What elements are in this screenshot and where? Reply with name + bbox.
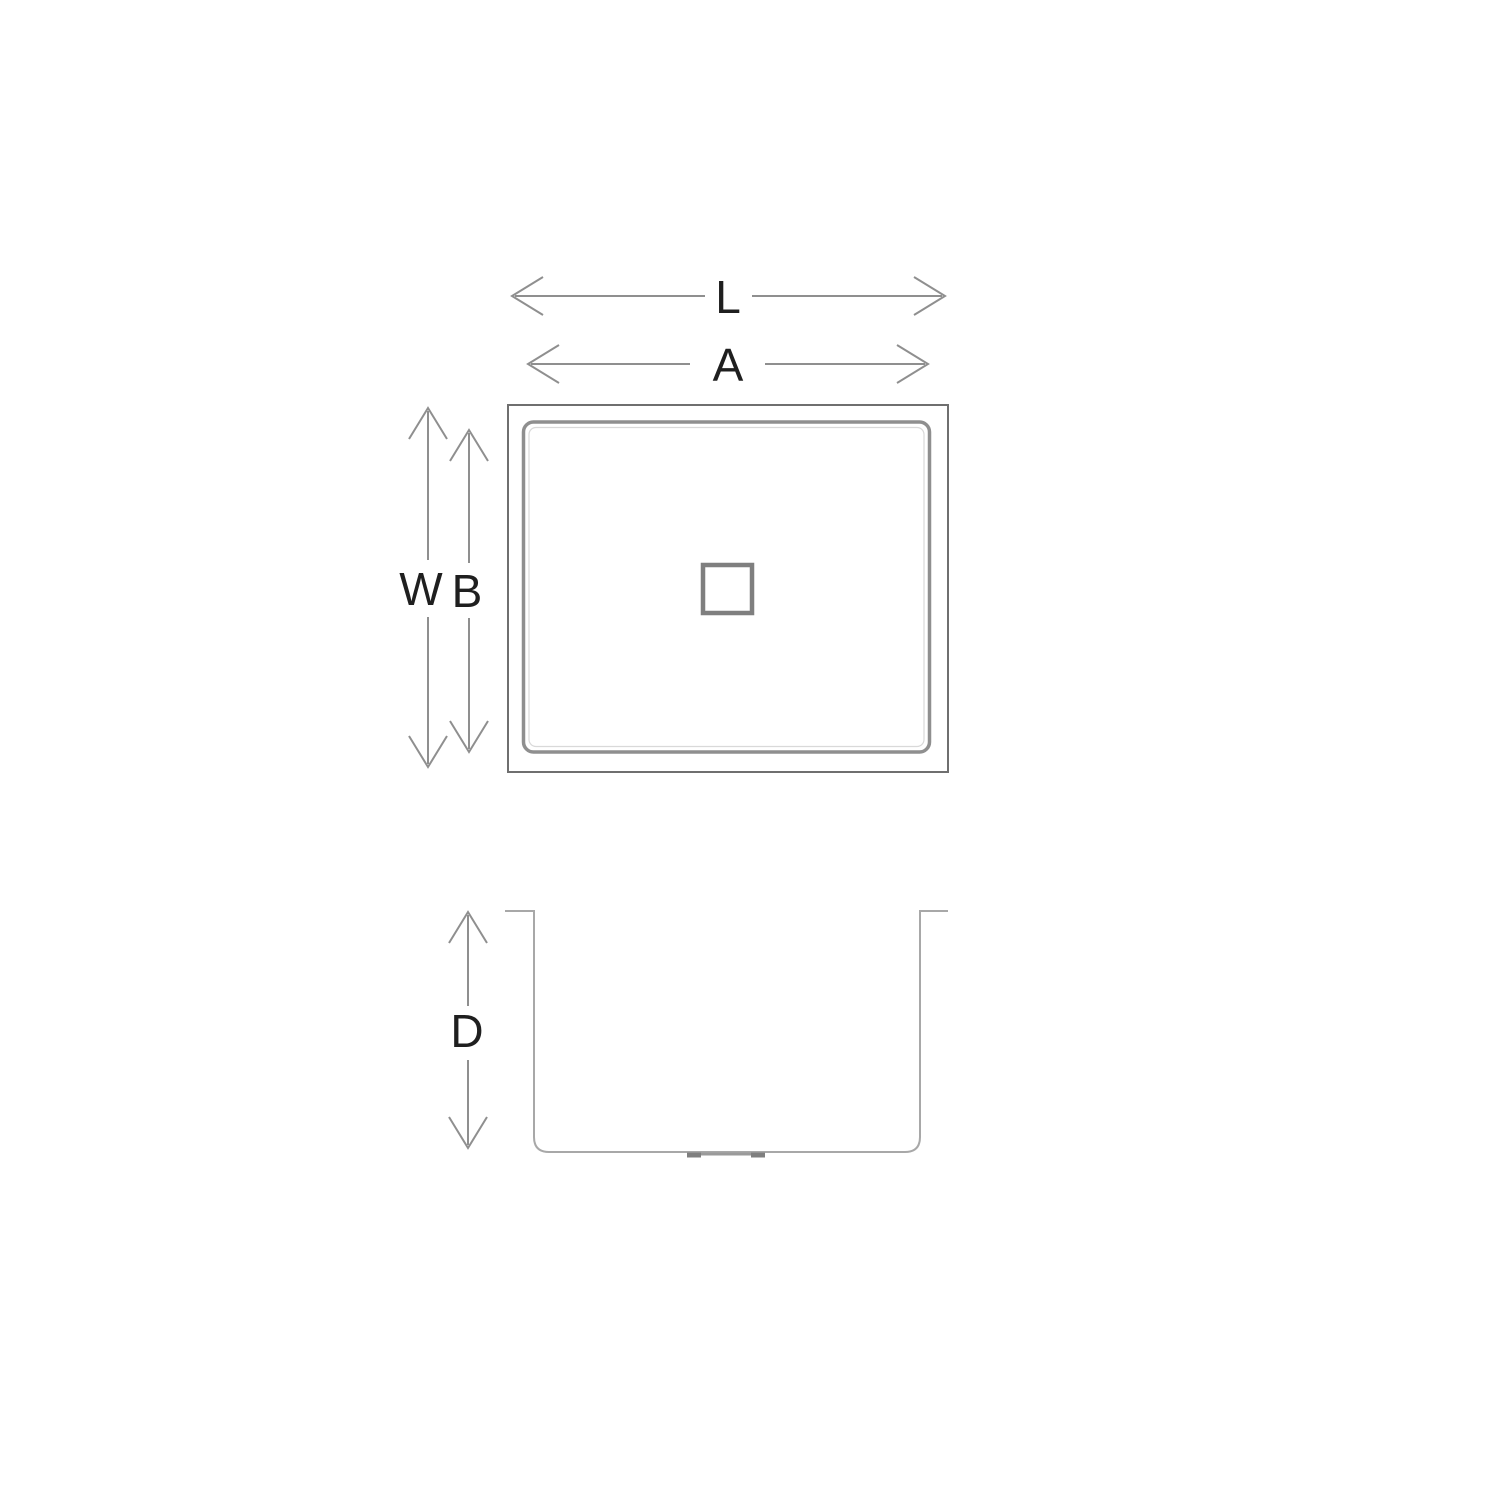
label-overall-width: W [399,563,443,615]
technical-drawing-page: L A W B D [0,0,1500,1500]
label-overall-length: L [715,271,741,323]
drain-square [703,565,752,613]
basin-section-profile [505,911,948,1152]
label-basin-length: A [713,339,744,391]
label-basin-width: B [452,565,483,617]
sink-dimension-diagram: L A W B D [0,0,1500,1500]
label-basin-depth: D [450,1005,483,1057]
section-drain-mark [687,1154,765,1155]
top-view [508,405,948,772]
section-view [505,911,948,1155]
